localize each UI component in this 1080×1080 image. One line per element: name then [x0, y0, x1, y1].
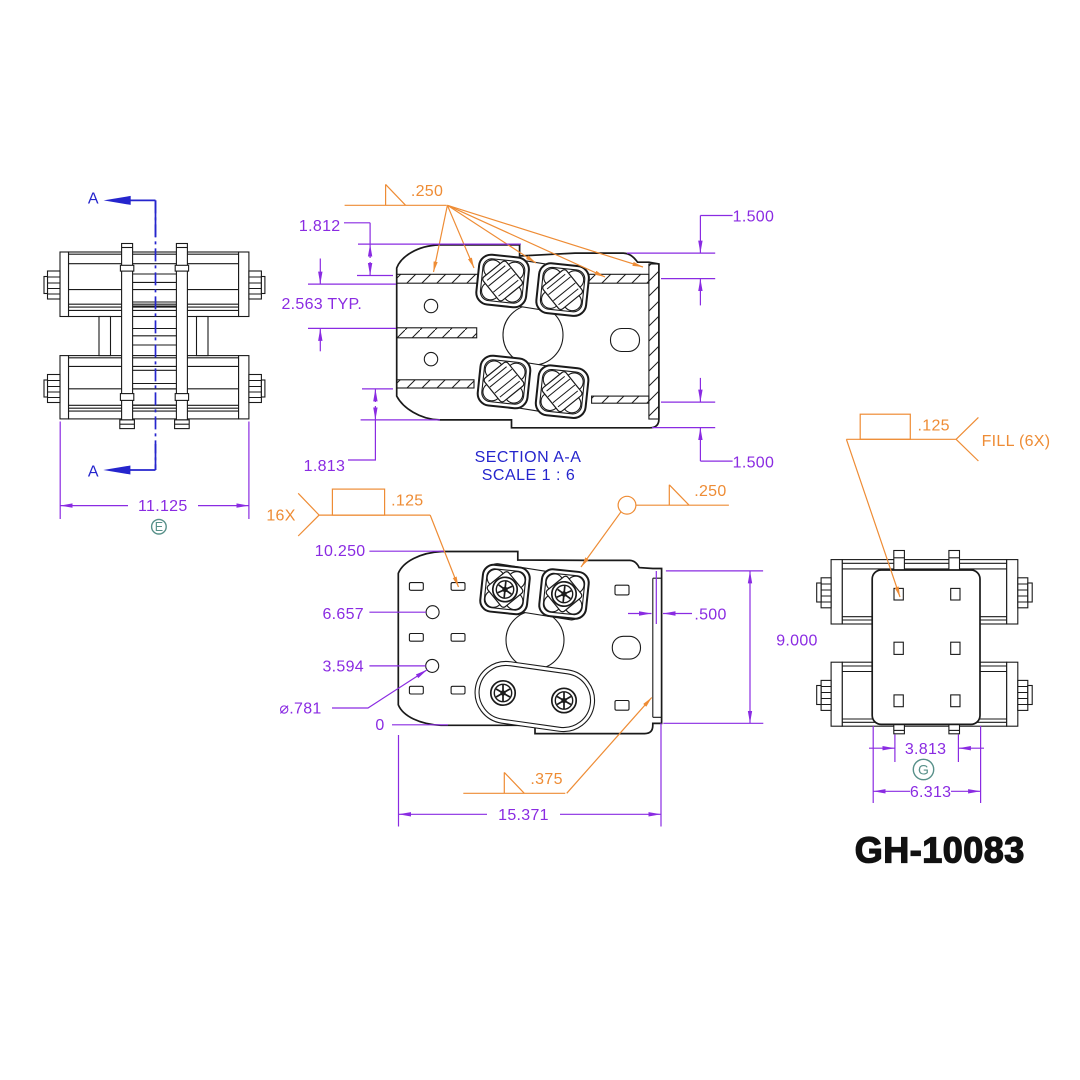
svg-text:SCALE 1 : 6: SCALE 1 : 6 [482, 467, 576, 484]
svg-text:.500: .500 [694, 607, 726, 624]
svg-text:11.125: 11.125 [138, 498, 188, 515]
svg-text:GH-10083: GH-10083 [855, 830, 1025, 871]
svg-text:2.563 TYP.: 2.563 TYP. [281, 296, 362, 313]
svg-text:⌀.781: ⌀.781 [279, 701, 321, 718]
svg-text:G: G [918, 762, 929, 778]
svg-text:3.594: 3.594 [322, 659, 364, 676]
svg-text:0: 0 [375, 717, 384, 734]
svg-text:.125: .125 [391, 493, 423, 510]
svg-text:16X: 16X [266, 508, 295, 525]
svg-text:E: E [155, 520, 163, 534]
svg-text:1.813: 1.813 [304, 458, 346, 475]
svg-text:FILL (6X): FILL (6X) [982, 433, 1051, 450]
svg-text:1.500: 1.500 [733, 209, 775, 226]
svg-text:A: A [88, 191, 99, 208]
svg-text:SECTION A-A: SECTION A-A [475, 449, 582, 466]
svg-text:A: A [88, 464, 99, 481]
svg-text:6.313: 6.313 [910, 784, 952, 801]
svg-text:6.657: 6.657 [322, 606, 364, 623]
svg-text:10.250: 10.250 [315, 543, 366, 560]
svg-text:.375: .375 [530, 771, 562, 788]
svg-text:1.500: 1.500 [733, 455, 775, 472]
svg-text:.125: .125 [918, 417, 950, 434]
svg-text:3.813: 3.813 [905, 741, 947, 758]
svg-text:.250: .250 [694, 483, 726, 500]
svg-text:15.371: 15.371 [498, 807, 549, 824]
svg-text:1.812: 1.812 [299, 218, 341, 235]
svg-text:9.000: 9.000 [776, 633, 818, 650]
svg-text:.250: .250 [411, 183, 443, 200]
